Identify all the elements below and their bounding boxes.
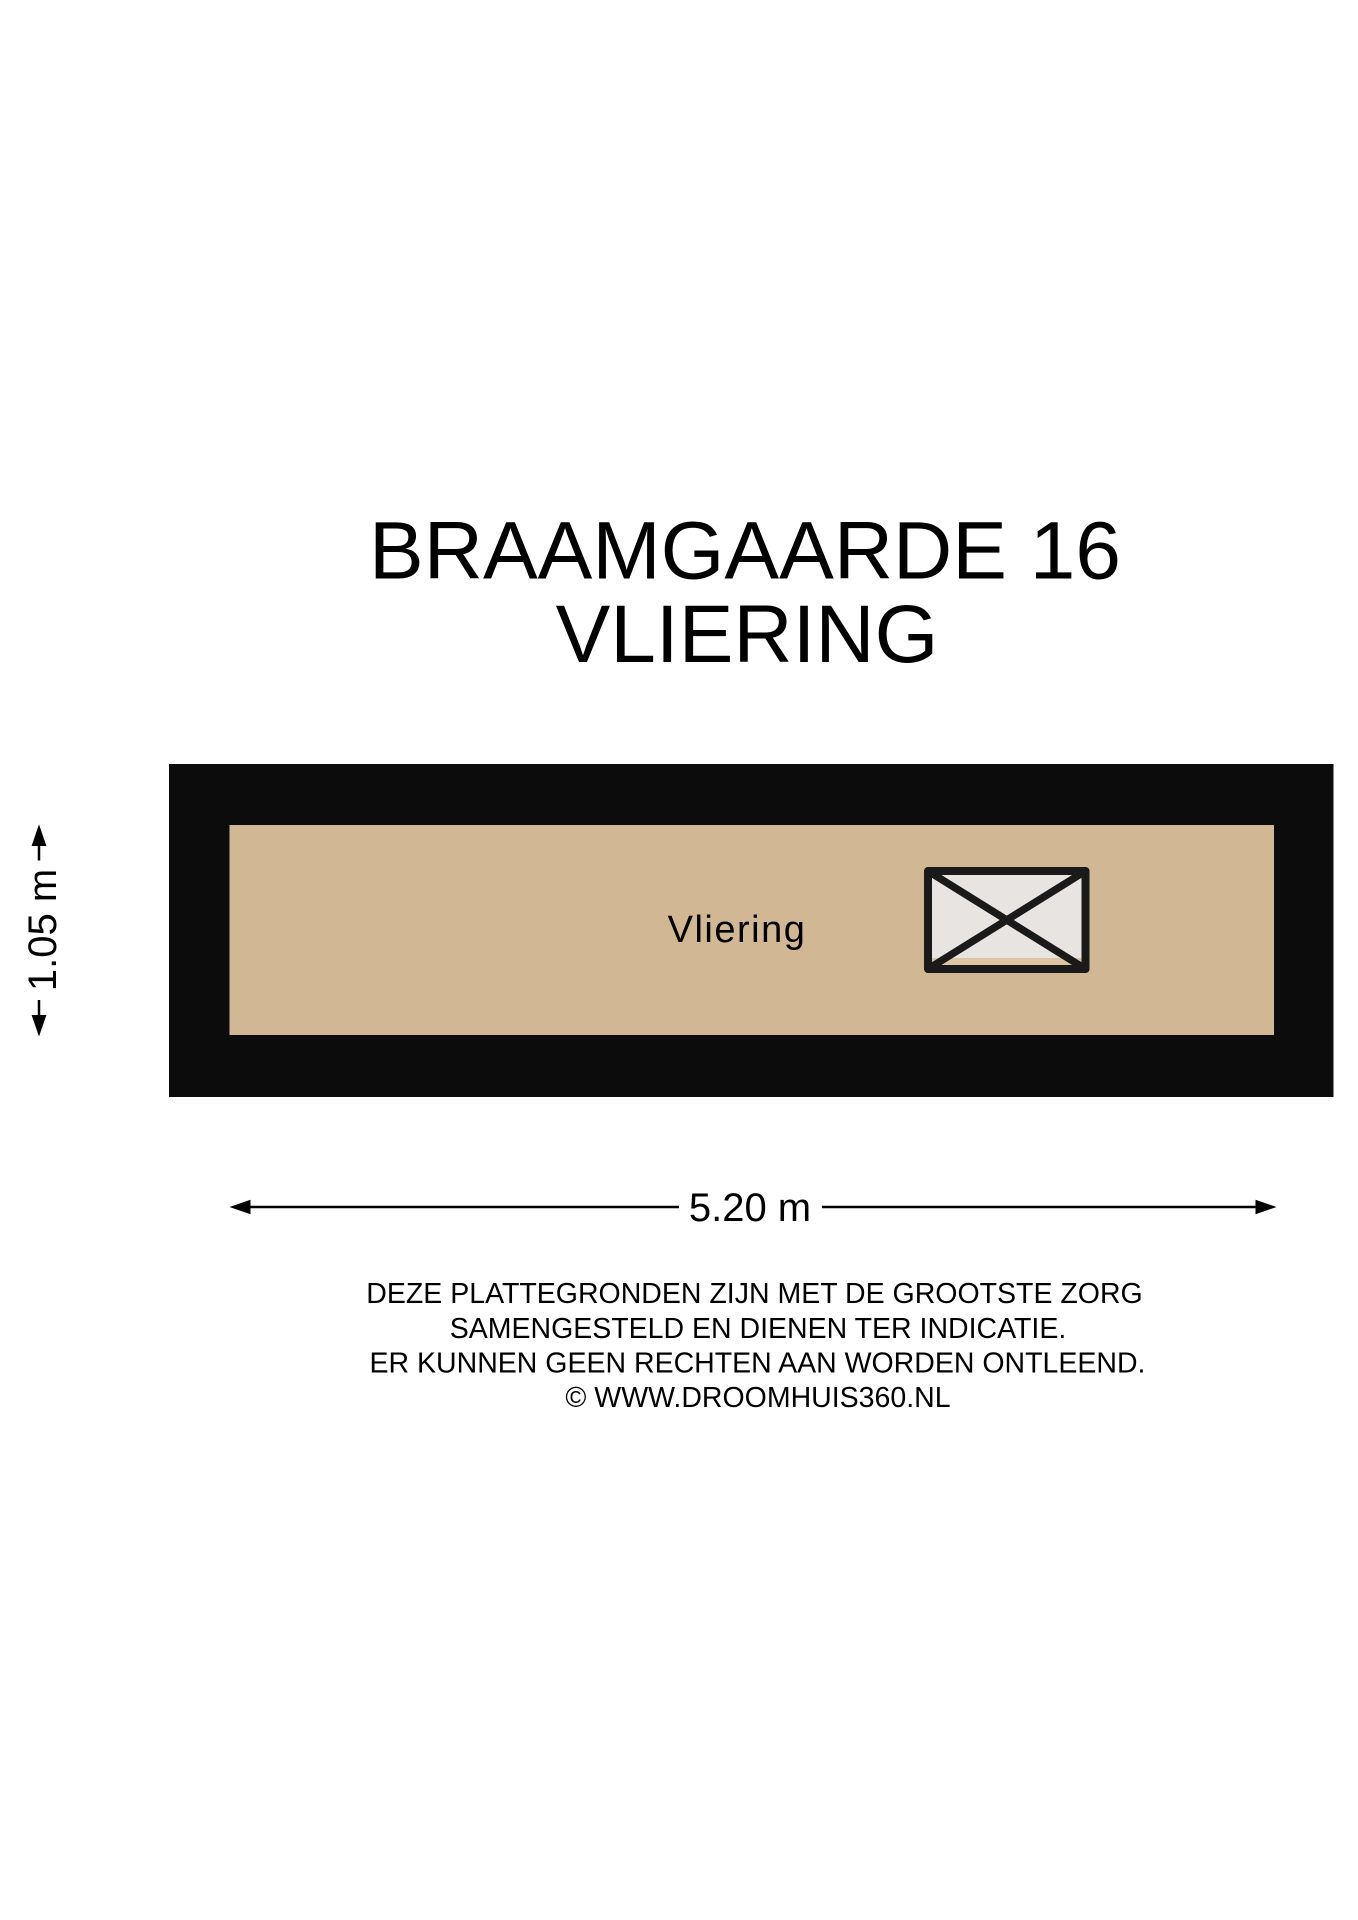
svg-text:ER KUNNEN GEEN RECHTEN AAN WOR: ER KUNNEN GEEN RECHTEN AAN WORDEN ONTLEE… bbox=[370, 1347, 1146, 1379]
svg-text:DEZE PLATTEGRONDEN ZIJN MET DE: DEZE PLATTEGRONDEN ZIJN MET DE GROOTSTE … bbox=[366, 1278, 1142, 1310]
svg-text:BRAAMGAARDE 16: BRAAMGAARDE 16 bbox=[369, 505, 1121, 596]
svg-text:5.20 m: 5.20 m bbox=[689, 1186, 811, 1230]
svg-text:Vliering: Vliering bbox=[668, 909, 807, 951]
svg-text:SAMENGESTELD EN DIENEN TER IND: SAMENGESTELD EN DIENEN TER INDICATIE. bbox=[450, 1313, 1067, 1345]
svg-text:VLIERING: VLIERING bbox=[556, 589, 939, 680]
svg-text:© WWW.DROOMHUIS360.NL: © WWW.DROOMHUIS360.NL bbox=[565, 1382, 950, 1414]
svg-text:1.05 m: 1.05 m bbox=[21, 869, 65, 991]
